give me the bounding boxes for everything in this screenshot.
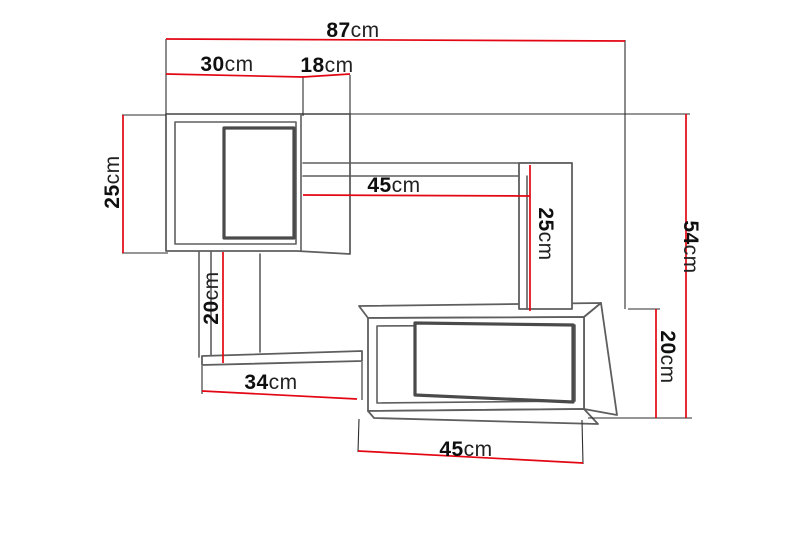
lower-box-back-panel xyxy=(415,323,573,402)
dim-label-cube-height: 25cm xyxy=(101,155,124,208)
lower-box-right-face xyxy=(584,303,617,415)
left-cube-shelf xyxy=(166,114,350,254)
left-cube-back-panel xyxy=(224,128,294,238)
dim-label-shelf-length: 45cm xyxy=(367,174,420,197)
dim-label-total-width: 87cm xyxy=(326,19,379,42)
dim-label-total-height: 54cm xyxy=(679,220,702,273)
dim-label-cube-depth: 18cm xyxy=(300,54,353,77)
dim-label-mid-panel-height: 25cm xyxy=(534,207,557,260)
lower-box-shelf xyxy=(359,303,617,424)
ext-lower-box-width-right xyxy=(582,420,583,464)
dim-label-left-panel-height: 20cm xyxy=(200,271,223,324)
dim-label-cube-width: 30cm xyxy=(200,53,253,76)
lower-box-bottom-strip xyxy=(368,409,598,424)
bottom-shelf-board xyxy=(202,351,362,365)
dimension-diagram-canvas: 87cm 30cm 18cm 25cm 45cm 25cm 54cm 20cm … xyxy=(0,0,800,533)
wall-shelf-dimension-drawing: 87cm 30cm 18cm 25cm 45cm 25cm 54cm 20cm … xyxy=(0,0,800,533)
ext-lower-box-width-left xyxy=(358,419,359,452)
dim-label-bottom-board-length: 34cm xyxy=(244,371,297,394)
dim-label-lower-box-width: 45cm xyxy=(439,438,492,461)
dim-label-lower-box-height: 20cm xyxy=(656,330,679,383)
dim-line-total-width xyxy=(166,39,625,41)
